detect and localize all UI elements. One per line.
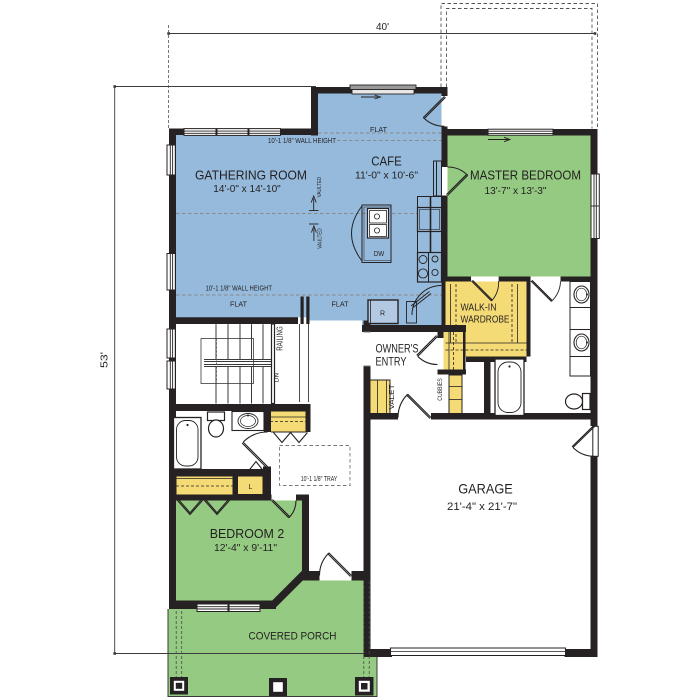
svg-text:10'-1 1/8" WALL HEIGHT: 10'-1 1/8" WALL HEIGHT [268,138,337,145]
svg-text:L: L [249,484,253,491]
svg-text:21'-4" x 21'-7": 21'-4" x 21'-7" [447,501,517,513]
svg-text:FLAT: FLAT [370,127,388,134]
svg-text:FLAT: FLAT [230,301,248,308]
svg-text:WALK-IN: WALK-IN [461,302,497,314]
svg-text:40': 40' [376,22,389,33]
svg-text:DW: DW [374,251,385,258]
svg-text:VALET: VALET [389,384,396,410]
svg-text:53': 53' [100,352,111,368]
svg-text:ENTRY: ENTRY [376,355,407,369]
svg-text:VAULTED: VAULTED [317,176,323,197]
svg-text:BEDROOM 2: BEDROOM 2 [210,526,285,541]
svg-text:10'-1 1/8" WALL HEIGHT: 10'-1 1/8" WALL HEIGHT [206,286,273,293]
svg-text:CAFE: CAFE [371,154,402,169]
svg-text:10'-1 1/8" TRAY: 10'-1 1/8" TRAY [301,476,338,483]
svg-text:FLAT: FLAT [332,301,350,308]
svg-text:COVERED PORCH: COVERED PORCH [249,631,337,643]
svg-text:11'-0" x 10'-6": 11'-0" x 10'-6" [355,171,418,182]
svg-text:R: R [380,311,385,318]
svg-text:RAILING: RAILING [276,326,285,351]
svg-text:GARAGE: GARAGE [458,481,513,497]
svg-text:VAULTED: VAULTED [317,228,323,249]
svg-text:OWNER'S: OWNER'S [376,342,419,356]
svg-text:DN: DN [274,373,281,383]
svg-text:14'-0" x 14'-10": 14'-0" x 14'-10" [213,184,281,195]
svg-text:13'-7" x 13'-3": 13'-7" x 13'-3" [485,186,547,197]
svg-text:MASTER BEDROOM: MASTER BEDROOM [470,168,581,183]
svg-text:WARDROBE: WARDROBE [461,314,510,326]
svg-text:CUBBIES: CUBBIES [437,378,444,401]
svg-text:GATHERING ROOM: GATHERING ROOM [195,168,307,183]
svg-text:12'-4" x 9'-11": 12'-4" x 9'-11" [214,543,277,554]
